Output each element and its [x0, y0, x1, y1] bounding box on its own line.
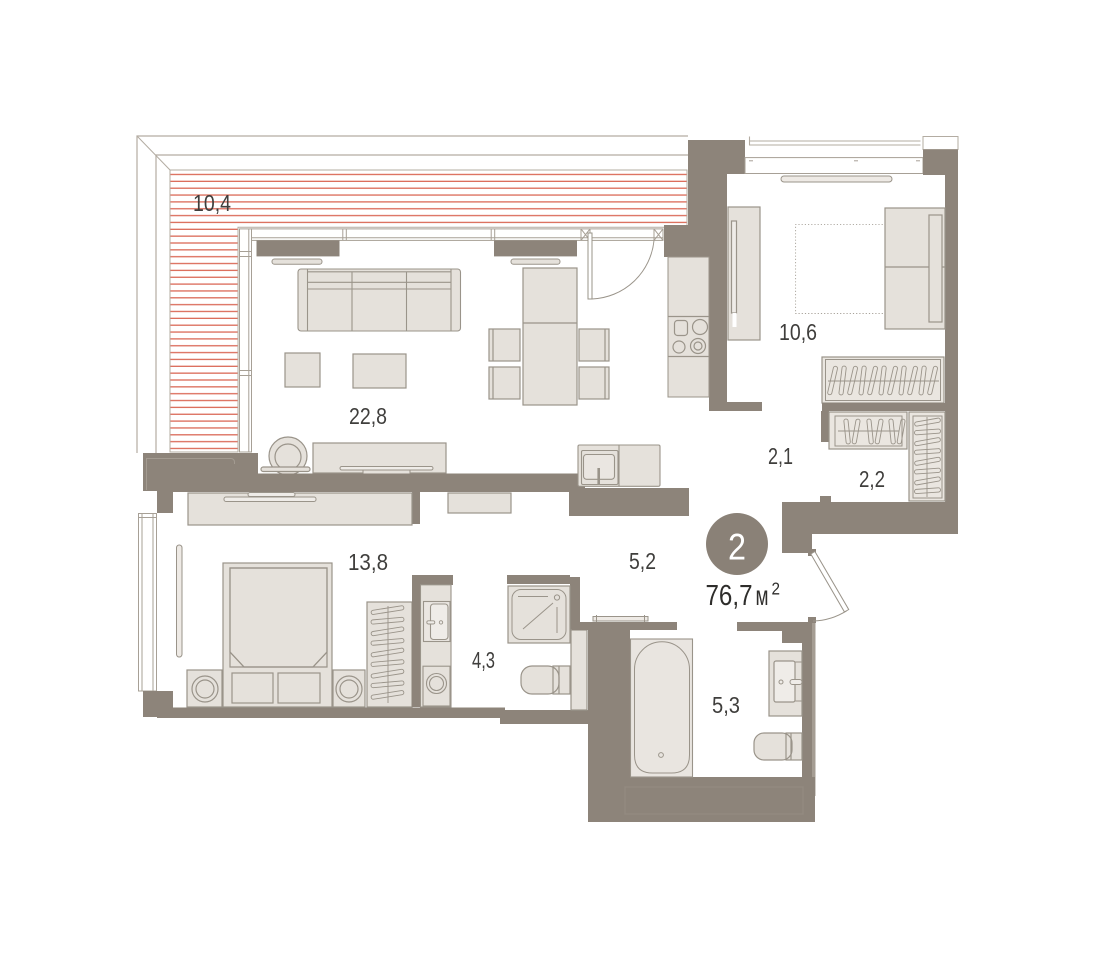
svg-text:22,8: 22,8 [349, 403, 387, 429]
svg-text:10,4: 10,4 [193, 190, 231, 216]
svg-text:м: м [756, 580, 769, 611]
svg-text:4,3: 4,3 [472, 647, 495, 673]
svg-text:13,8: 13,8 [348, 549, 388, 575]
svg-text:2: 2 [772, 579, 781, 599]
svg-text:5,2: 5,2 [629, 548, 656, 574]
svg-text:5,3: 5,3 [712, 692, 740, 718]
svg-text:2: 2 [728, 526, 746, 568]
svg-text:76,7: 76,7 [706, 580, 753, 612]
svg-text:2,1: 2,1 [768, 443, 793, 469]
svg-text:10,6: 10,6 [779, 319, 817, 345]
svg-text:2,2: 2,2 [859, 466, 885, 492]
